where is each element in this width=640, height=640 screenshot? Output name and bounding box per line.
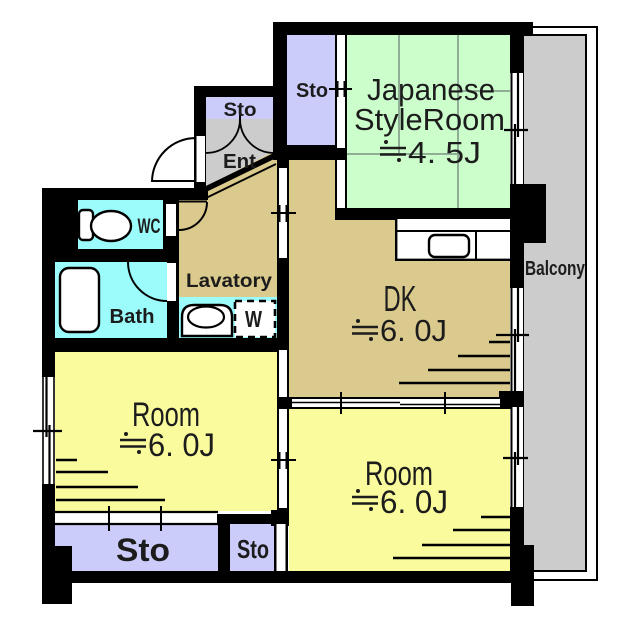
svg-text:4. 5J: 4. 5J [408,135,481,170]
svg-text:Sto: Sto [116,532,170,568]
svg-text:6. 0J: 6. 0J [148,427,215,463]
svg-text:Balcony: Balcony [525,258,586,280]
svg-text:StyleRoom: StyleRoom [354,102,505,137]
svg-text:Sto: Sto [237,534,269,564]
svg-text:Sto: Sto [224,100,257,121]
svg-text:Ent: Ent [223,151,256,173]
svg-text:6. 0J: 6. 0J [380,313,447,348]
svg-text:W: W [245,306,262,332]
svg-text:Lavatory: Lavatory [186,271,272,292]
svg-text:Sto: Sto [296,80,328,102]
svg-text:WC: WC [138,215,161,238]
svg-text:Bath: Bath [110,306,155,328]
svg-text:6. 0J: 6. 0J [380,484,448,520]
